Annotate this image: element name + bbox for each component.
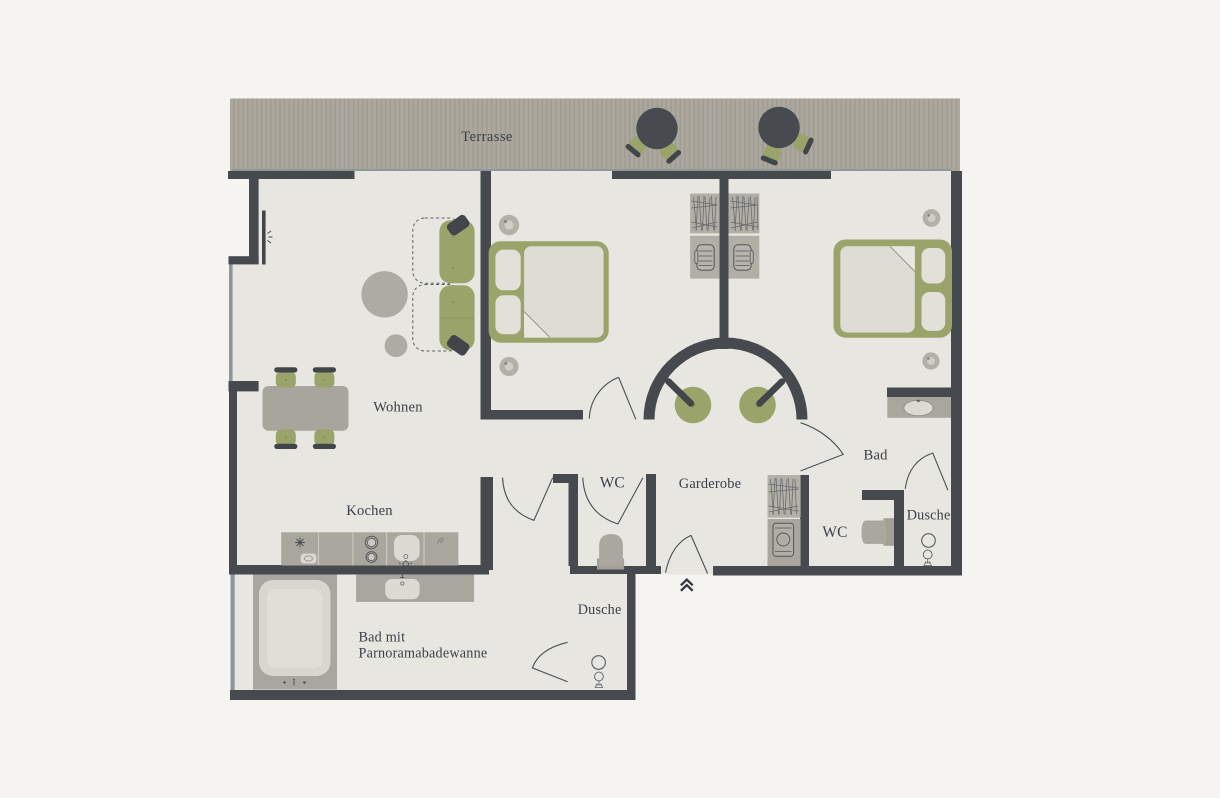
svg-text:Dusche: Dusche — [578, 602, 622, 618]
svg-text:Wohnen: Wohnen — [373, 400, 423, 416]
svg-text:WC: WC — [600, 475, 625, 492]
svg-text:Terrasse: Terrasse — [461, 129, 513, 145]
svg-text:Dusche: Dusche — [907, 508, 951, 524]
svg-text:Kochen: Kochen — [346, 503, 393, 519]
svg-text:Parnoramabadewanne: Parnoramabadewanne — [359, 645, 488, 661]
svg-text:Garderobe: Garderobe — [679, 476, 742, 492]
svg-text:WC: WC — [822, 524, 847, 541]
svg-text:Bad: Bad — [864, 448, 889, 464]
svg-text:Bad mit: Bad mit — [359, 630, 406, 646]
